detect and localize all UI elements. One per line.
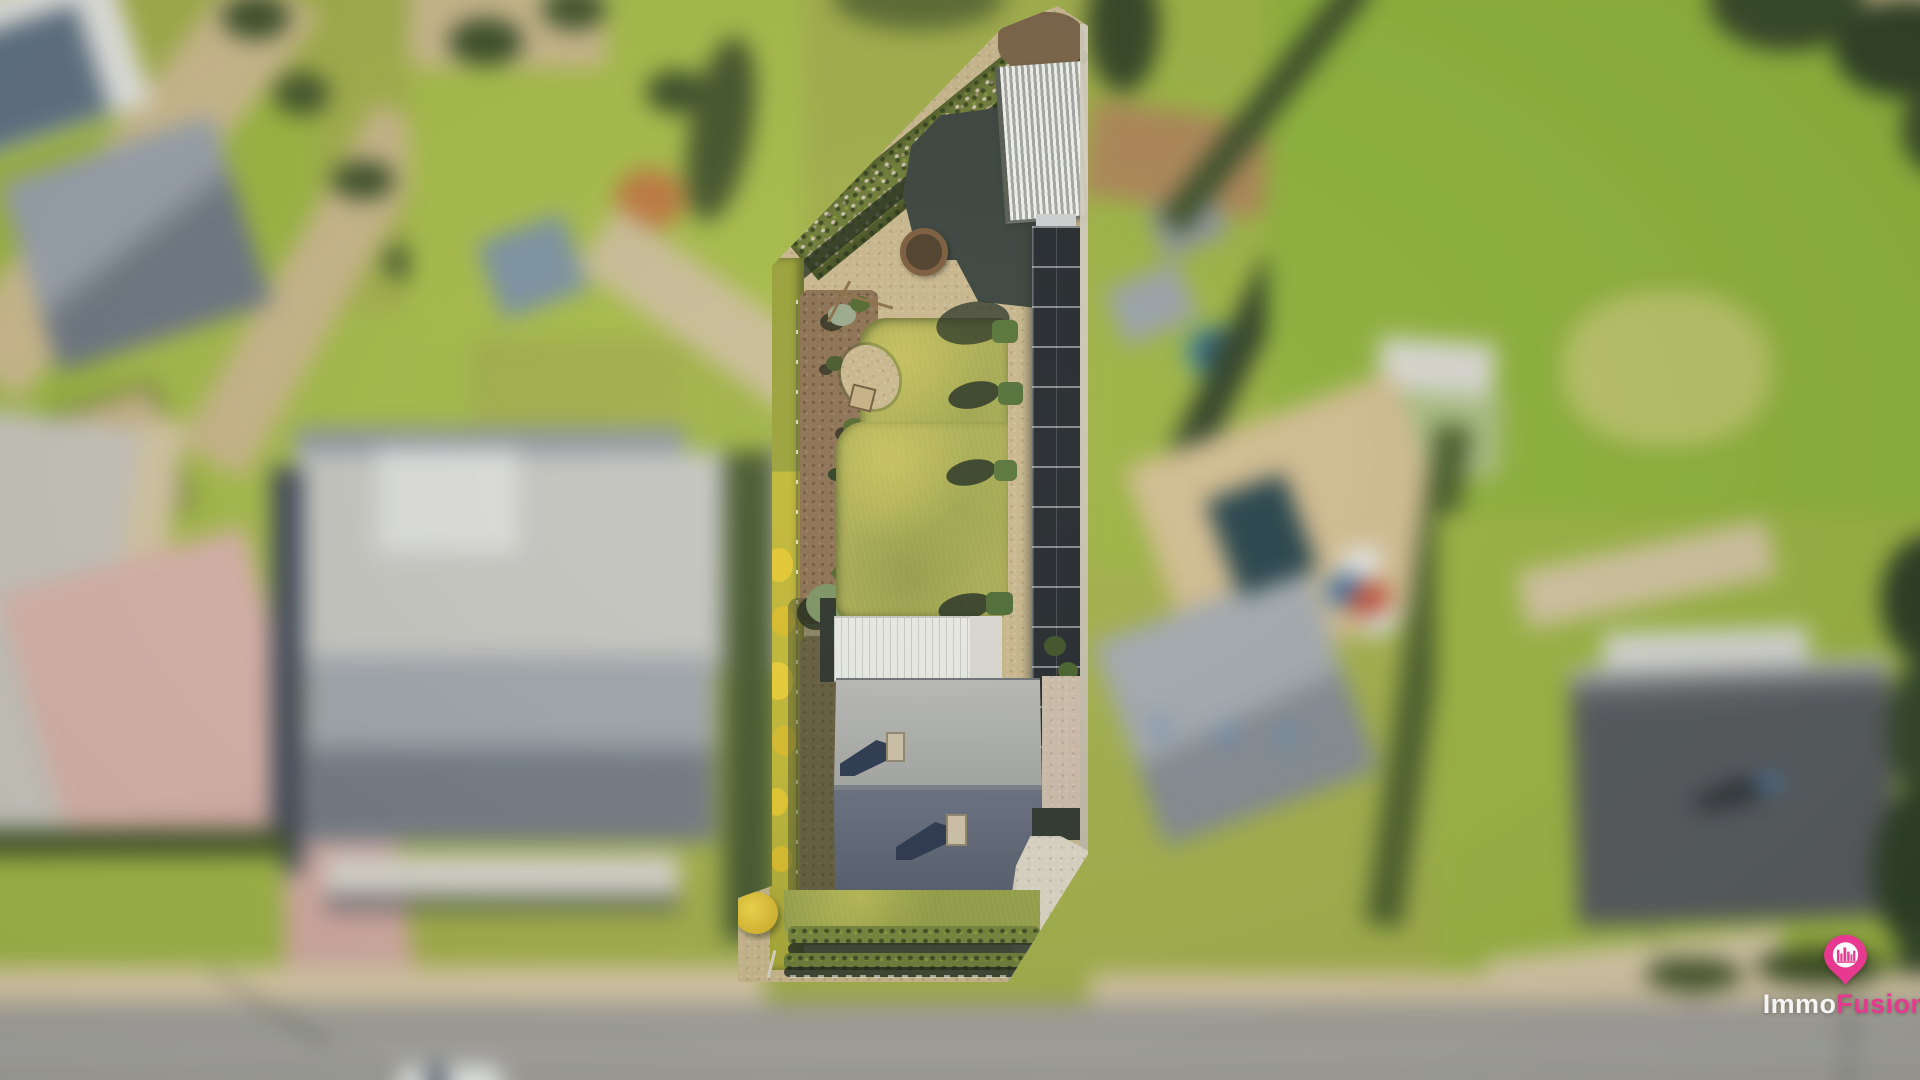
box-bush [994,460,1017,481]
hedge-near-road-right [1644,958,1743,991]
hedge-right-of-left-house [724,415,776,940]
car-white-road [398,1066,502,1080]
road-tire-streak-2 [0,1070,1920,1079]
fence-light-strip [1080,24,1088,856]
left-house-shadow [272,467,303,873]
far-house-skylight [1757,775,1781,791]
chimney-1 [886,732,905,762]
field-light-patch [1563,290,1771,446]
hedge-blob [274,72,330,116]
main-lawn-lower [836,422,1008,618]
hedge-above-parcel [833,0,1005,30]
left-house-roof-light [378,448,518,552]
box-bush [998,382,1023,405]
car-white-windshield [428,1066,446,1080]
outbuilding-corrugated-roof [995,61,1093,224]
front-fence-line [790,975,1030,978]
chimney-2 [946,814,967,846]
brand-logo: ImmoFusion [1756,934,1920,1018]
house-roof-ridge [834,785,1042,790]
brand-name-immo: Immo [1763,989,1837,1019]
annex-roof-right-section [970,616,1002,678]
garden-well [900,228,948,276]
brand-name: ImmoFusion [1756,991,1920,1018]
house-roof-upper-slope [834,678,1042,788]
left-house-hip-roof [305,656,716,841]
wall-shadow-driveway [1032,808,1080,840]
left-house-porch-shadow [326,894,680,913]
yellow-bush-front-corner [734,892,778,934]
hedge-bottom-left [0,829,289,856]
brand-name-fusion: Fusion [1836,989,1920,1019]
road-tire-streak [0,1025,1920,1032]
box-bush [992,320,1018,343]
road-curb [0,1003,1920,1007]
left-house-porch [326,855,680,897]
aerial-photo: ImmoFusion [0,0,1920,1080]
box-bush [986,592,1013,615]
hedge-blob [331,160,395,200]
hedge-blob [448,18,523,66]
bush-right-of-annex [1044,636,1066,656]
solar-array-endcap [1036,214,1076,226]
map-pin-icon [1822,934,1869,986]
